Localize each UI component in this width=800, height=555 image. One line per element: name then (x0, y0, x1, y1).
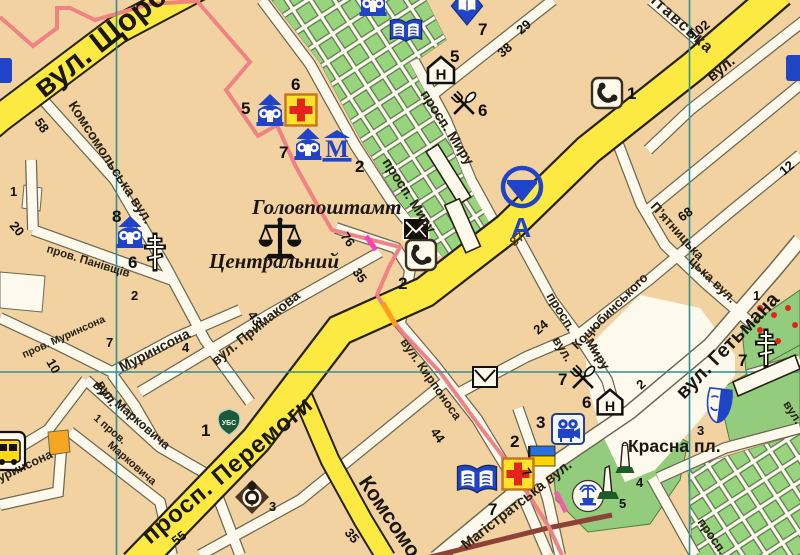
svg-text:6: 6 (291, 75, 300, 94)
svg-text:6: 6 (478, 101, 487, 120)
svg-text:1: 1 (201, 421, 210, 440)
svg-text:3: 3 (269, 499, 276, 514)
svg-text:7: 7 (478, 20, 487, 39)
svg-text:1: 1 (627, 84, 636, 103)
svg-text:3: 3 (536, 413, 545, 432)
svg-text:8: 8 (112, 207, 121, 226)
svg-text:2: 2 (131, 288, 138, 303)
svg-text:6: 6 (582, 393, 591, 412)
svg-text:2: 2 (398, 274, 407, 293)
svg-text:7: 7 (279, 143, 288, 162)
svg-text:2: 2 (355, 157, 364, 176)
svg-text:1: 1 (753, 288, 760, 303)
svg-text:5: 5 (241, 99, 250, 118)
svg-text:Красна пл.: Красна пл. (628, 436, 721, 456)
svg-text:Центральний: Центральний (208, 249, 339, 273)
svg-text:7: 7 (738, 351, 747, 370)
svg-text:4: 4 (636, 475, 644, 490)
svg-text:7: 7 (558, 370, 567, 389)
svg-text:1: 1 (10, 184, 17, 199)
svg-text:4: 4 (182, 340, 190, 355)
svg-text:5: 5 (450, 47, 459, 66)
svg-text:Головпоштамт: Головпоштамт (251, 195, 401, 219)
svg-text:5: 5 (619, 496, 626, 511)
svg-text:7: 7 (106, 335, 113, 350)
svg-text:2: 2 (510, 432, 519, 451)
